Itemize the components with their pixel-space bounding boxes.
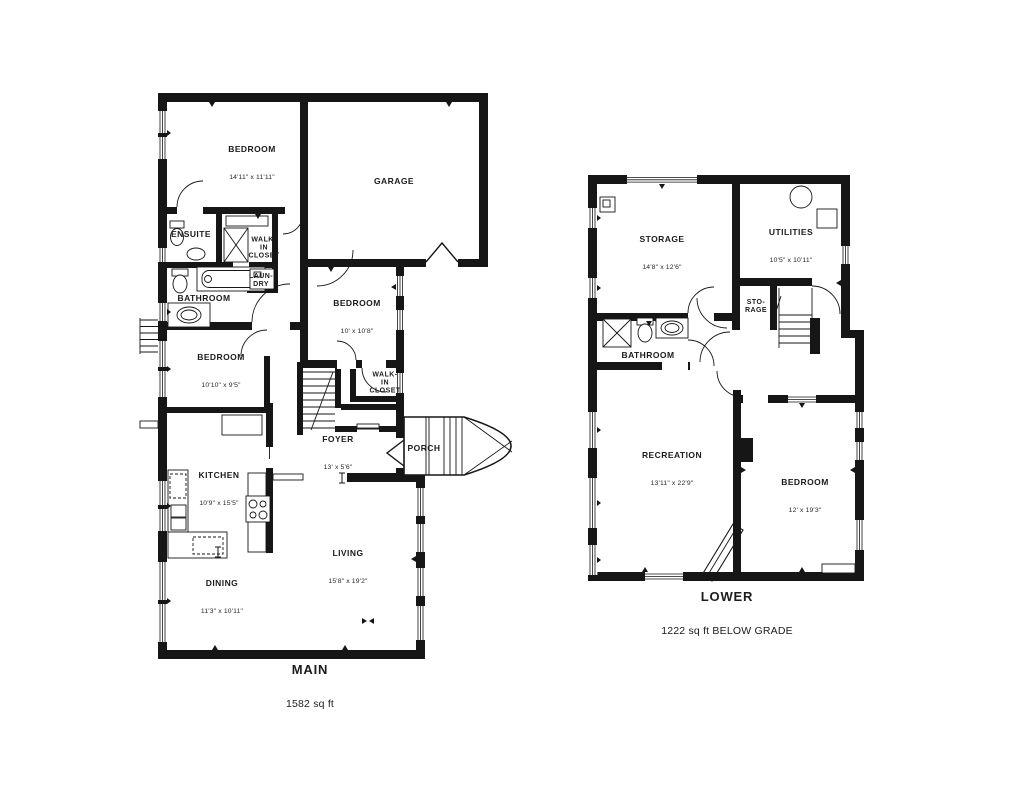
wall-ticks [597, 184, 855, 572]
floor-plan-page: BEDROOM 14'11" x 11'11" GARAGE ENSUITE W… [0, 0, 1024, 791]
porch-deck [404, 417, 512, 475]
toilet-icon [172, 269, 188, 293]
closet-shelf [226, 216, 268, 226]
main-floor-plan [140, 93, 512, 659]
window-sill [822, 564, 855, 573]
washer-icon [250, 269, 274, 289]
shower-icon [603, 319, 631, 347]
lower-fixtures [600, 186, 855, 573]
furnace-icon [817, 209, 837, 228]
kitchen-counter [168, 470, 188, 532]
main-walls [158, 93, 488, 659]
exterior-steps [140, 318, 158, 428]
stove-icon [246, 496, 270, 522]
sump-icon [600, 197, 615, 212]
stairs-icon [779, 288, 812, 348]
shower-icon [224, 228, 248, 262]
toilet-icon [170, 221, 184, 246]
floor-plan-drawing [0, 0, 1024, 791]
water-heater-icon [790, 186, 812, 208]
vanity-sink-icon [168, 303, 210, 327]
main-windows [158, 111, 426, 642]
vanity-sink-icon [656, 318, 688, 338]
lower-windows [588, 175, 865, 582]
section-markers [215, 473, 345, 557]
lower-floor-plan [588, 175, 865, 582]
sink-icon [187, 248, 205, 260]
wall-ticks [167, 102, 452, 650]
lower-walls [588, 175, 864, 581]
desk [222, 415, 262, 435]
